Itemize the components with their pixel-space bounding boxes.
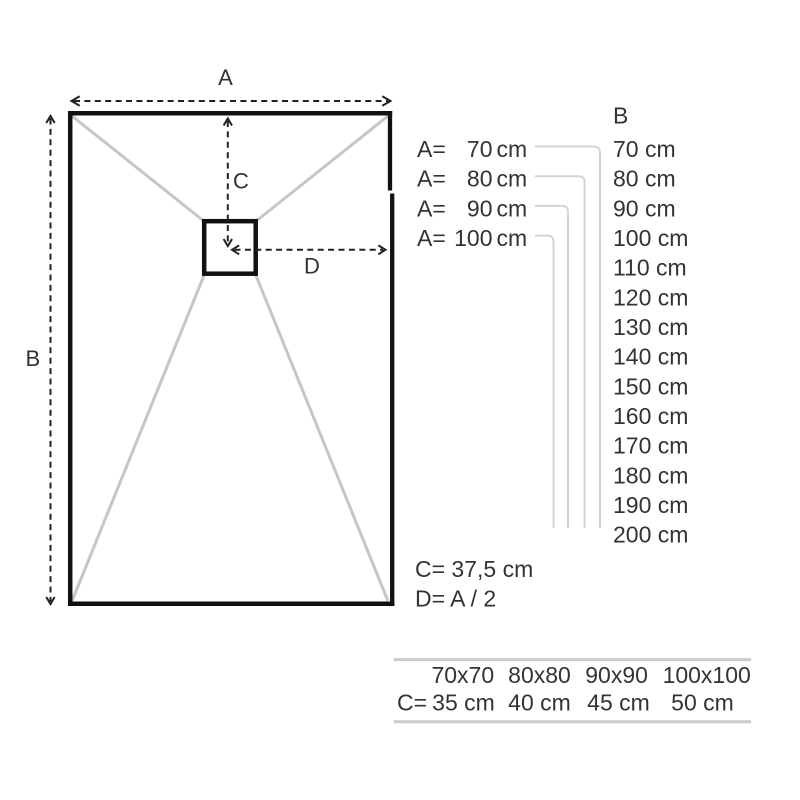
svg-text:100: 100 [454,225,492,251]
svg-text:150 cm: 150 cm [613,373,688,399]
svg-text:A=: A= [417,225,446,251]
svg-text:70 cm: 70 cm [613,136,676,162]
svg-text:80: 80 [467,166,493,192]
svg-text:C=: C= [397,690,427,716]
svg-text:170 cm: 170 cm [613,433,688,459]
svg-text:190 cm: 190 cm [613,492,688,518]
svg-text:B: B [26,346,41,371]
svg-text:cm: cm [497,225,528,251]
svg-text:100 cm: 100 cm [613,225,688,251]
svg-text:70x70: 70x70 [431,662,494,688]
svg-text:C: C [233,169,249,194]
svg-text:110 cm: 110 cm [613,255,687,281]
svg-text:A=: A= [417,166,446,192]
svg-text:cm: cm [497,166,528,192]
svg-text:90 cm: 90 cm [613,195,676,221]
svg-text:45 cm: 45 cm [587,690,650,716]
svg-text:180 cm: 180 cm [613,462,688,488]
svg-text:A: A [218,65,233,90]
svg-text:cm: cm [497,195,528,221]
svg-text:100x100: 100x100 [663,662,751,688]
svg-text:A=: A= [417,136,446,162]
svg-text:A=: A= [417,195,446,221]
svg-text:40 cm: 40 cm [508,690,571,716]
svg-text:200 cm: 200 cm [613,522,688,548]
svg-text:D= A / 2: D= A / 2 [415,586,496,612]
svg-text:80 cm: 80 cm [613,166,676,192]
svg-text:C= 37,5 cm: C= 37,5 cm [415,556,533,582]
svg-text:130 cm: 130 cm [613,314,688,340]
svg-text:70: 70 [467,136,493,162]
svg-text:50 cm: 50 cm [671,690,734,716]
svg-text:90: 90 [467,195,493,221]
svg-text:35 cm: 35 cm [432,690,495,716]
svg-text:B: B [613,103,628,129]
svg-text:80x80: 80x80 [508,662,571,688]
svg-text:160 cm: 160 cm [613,403,688,429]
svg-text:140 cm: 140 cm [613,344,688,370]
svg-text:cm: cm [497,136,528,162]
svg-text:D: D [304,254,320,279]
svg-text:90x90: 90x90 [585,662,648,688]
svg-text:120 cm: 120 cm [613,284,688,310]
